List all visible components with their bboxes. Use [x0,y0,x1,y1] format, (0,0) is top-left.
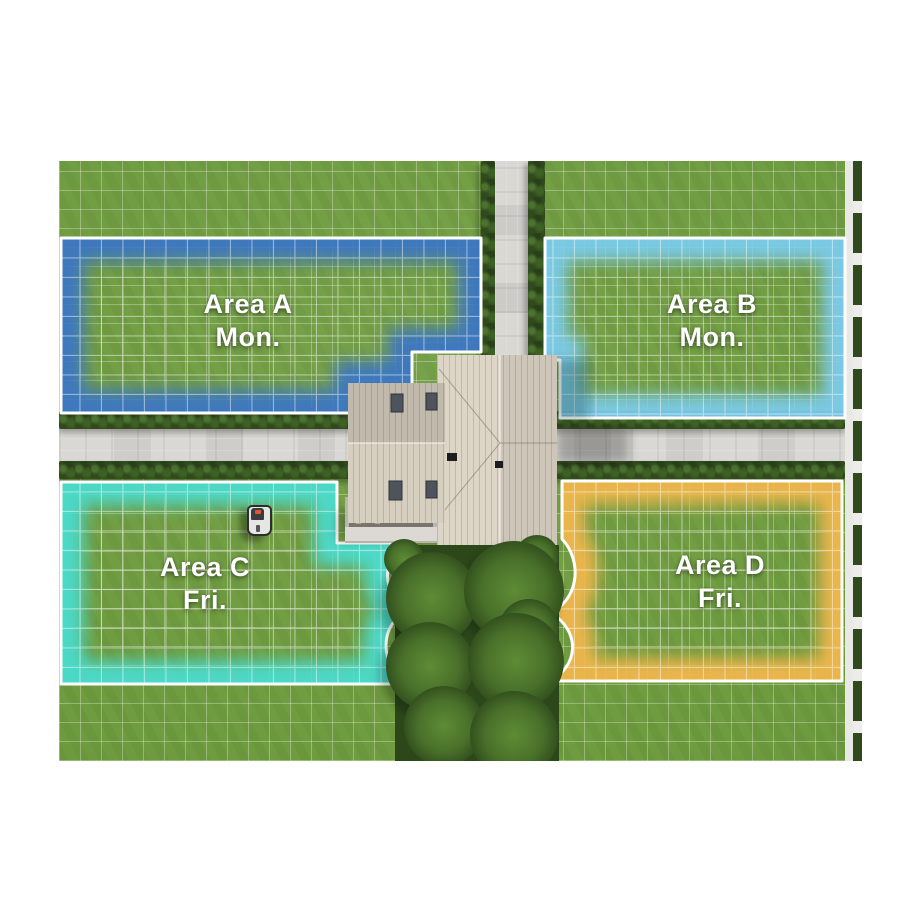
zone-c-day: Fri. [160,584,250,617]
trees [379,535,564,761]
aerial-map: Area A Mon. Area B Mon. Area C Fri. Area… [59,161,862,761]
house [345,355,557,545]
zone-c-name: Area C [160,551,250,584]
zone-d-label: Area D Fri. [675,549,765,615]
roof-vent [447,453,457,461]
zone-a-label: Area A Mon. [203,288,292,354]
zone-b-label: Area B Mon. [667,288,757,354]
mower-stop-button [255,510,261,514]
zone-b-day: Mon. [667,321,757,354]
zone-a-name: Area A [203,288,292,321]
mower-stripe [256,525,260,532]
skylight [426,481,437,498]
zone-a-day: Mon. [203,321,292,354]
page: Area A Mon. Area B Mon. Area C Fri. Area… [0,0,922,922]
house-shadow-road [557,427,629,463]
zone-d-name: Area D [675,549,765,582]
zone-c-label: Area C Fri. [160,551,250,617]
zone-d-day: Fri. [675,582,765,615]
zones-and-scenery [59,161,862,761]
roof-vent [495,461,503,468]
skylight [426,393,437,410]
zone-b-name: Area B [667,288,757,321]
robot-mower[interactable] [247,505,272,536]
skylight [389,481,402,500]
skylight [391,394,403,412]
